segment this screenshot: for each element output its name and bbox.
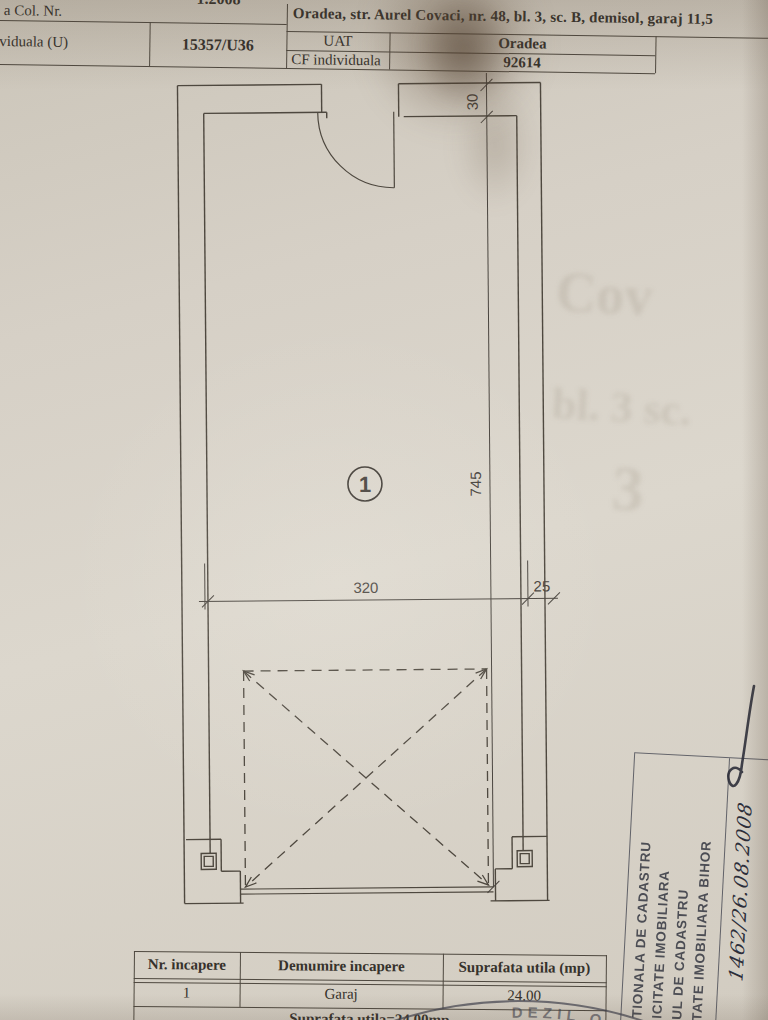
dim-745: 745 xyxy=(467,471,484,496)
door-swing xyxy=(318,112,395,189)
opening-dashed-marking xyxy=(244,669,489,887)
header-nr-incapere: Nr. incapere xyxy=(134,956,240,974)
dim-320: 320 xyxy=(353,579,378,596)
dim-25: 25 xyxy=(533,577,550,594)
registry-stamp-box: TIONALA DE CADASTRU ICITATE IMOBILIARA U… xyxy=(620,752,768,1020)
dim-30: 30 xyxy=(464,94,481,111)
rooms-table: Nr. incapere Demumire incapere Suprafata… xyxy=(133,948,607,1020)
row-suprafata: 24.00 xyxy=(443,987,606,1005)
header-denumire: Demumire incapere xyxy=(240,957,443,976)
row-nr: 1 xyxy=(134,984,240,1002)
dimension-lines xyxy=(194,72,562,895)
row-denumire: Garaj xyxy=(240,985,443,1004)
header-suprafata: Suprafata utila (mp) xyxy=(443,959,606,977)
room-number: 1 xyxy=(359,472,371,497)
